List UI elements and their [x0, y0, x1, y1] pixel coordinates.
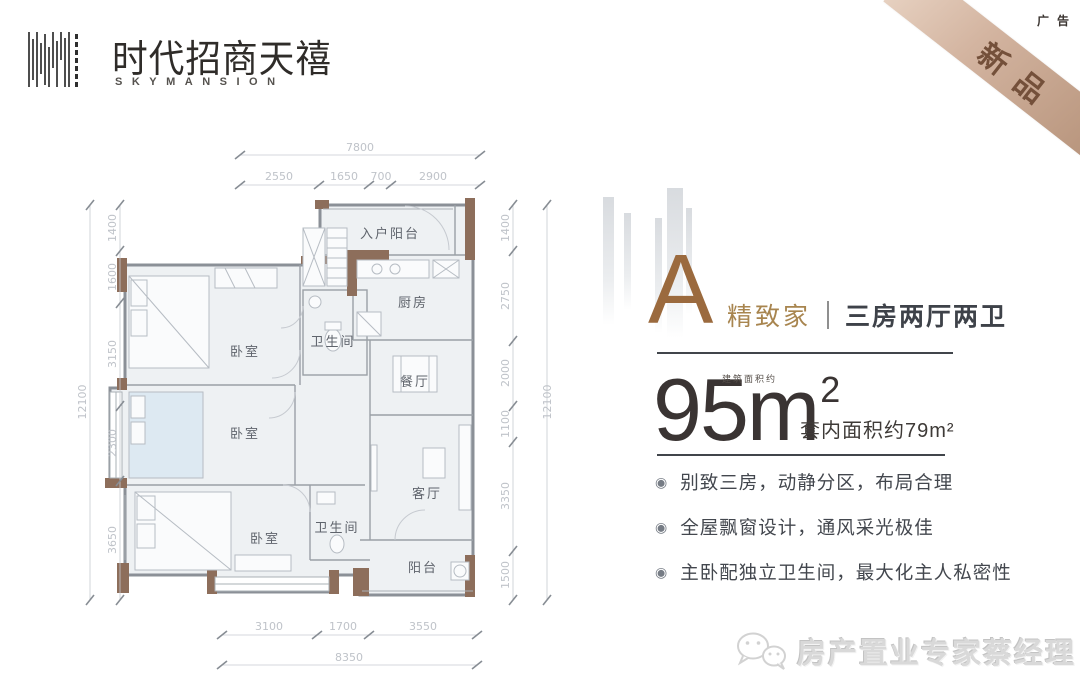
dim-bottom-total: 8350	[335, 651, 363, 664]
dim-top-seg-1: 1650	[330, 170, 358, 183]
dim-right-seg-3: 1100	[499, 410, 512, 438]
feature-item: ◉ 全屋飘窗设计，通风采光极佳	[655, 515, 1012, 539]
dim-left-seg-1: 1600	[106, 263, 119, 291]
dim-left-seg-2: 3150	[106, 340, 119, 368]
feature-bullet-icon: ◉	[655, 475, 667, 489]
feature-list: ◉ 别致三房，动静分区，布局合理 ◉ 全屋飘窗设计，通风采光极佳 ◉ 主卧配独立…	[655, 470, 1012, 605]
watermark-text: 房产置业专家蔡经理	[797, 630, 1076, 672]
unit-layout-desc: 三房两厅两卫	[845, 297, 1007, 333]
dim-right-seg-1: 2750	[499, 282, 512, 310]
room-label-dining: 餐厅	[400, 374, 430, 390]
feature-text: 全屋飘窗设计，通风采光极佳	[680, 514, 934, 540]
dim-top-seg-3: 2900	[419, 170, 447, 183]
dim-right-seg-5: 1500	[499, 561, 512, 589]
dim-right-total: 12100	[541, 385, 554, 420]
divider-rule-top	[657, 352, 953, 354]
dim-left-seg-0: 1400	[106, 214, 119, 242]
ad-tag-label: 广告	[1037, 12, 1077, 29]
agent-watermark: 房产置业专家蔡经理	[733, 629, 1076, 673]
area-block: 95m2 建筑面积约 套内面积约79m²	[653, 366, 840, 458]
room-label-bedroom-upper: 卧室	[230, 344, 260, 360]
room-label-kitchen: 厨房	[398, 295, 428, 311]
room-label-bath-lower: 卫生间	[314, 521, 359, 536]
feature-bullet-icon: ◉	[655, 565, 667, 579]
feature-text: 别致三房，动静分区，布局合理	[680, 469, 953, 495]
dim-right-seg-2: 2000	[499, 359, 512, 387]
dim-right-seg-4: 3350	[499, 482, 512, 510]
ad-canvas: 时代招商天禧 SKYMANSION 广告 新品	[0, 0, 1080, 699]
dim-top-total: 7800	[346, 141, 374, 154]
room-label-bath-upper: 卫生间	[310, 335, 355, 350]
unit-tag-row: 精致家 三房两厅两卫	[727, 297, 1007, 333]
room-label-entry-balcony: 入户阳台	[360, 226, 420, 242]
ribbon-label: 新品	[957, 20, 1069, 121]
unit-type-letter: A	[648, 250, 713, 328]
logo-mark-icon	[28, 30, 84, 90]
dim-right-seg-0: 1400	[499, 214, 512, 242]
dim-top-seg-0: 2550	[265, 170, 293, 183]
inner-area-label: 套内面积约79m²	[800, 414, 955, 443]
feature-item: ◉ 别致三房，动静分区，布局合理	[655, 470, 1012, 494]
feature-text: 主卧配独立卫生间，最大化主人私密性	[680, 559, 1012, 585]
area-exponent: 2	[820, 369, 840, 410]
divider	[827, 301, 829, 329]
brand-logo: 时代招商天禧 SKYMANSION	[28, 26, 328, 106]
unit-tagline: 精致家	[727, 297, 811, 333]
feature-bullet-icon: ◉	[655, 520, 667, 534]
dim-left-seg-3: 2300	[106, 429, 119, 457]
room-label-living: 客厅	[412, 486, 442, 502]
room-label-balcony: 阳台	[408, 561, 438, 576]
room-label-bedroom-middle: 卧室	[230, 426, 260, 442]
dim-bottom-seg-1: 1700	[329, 620, 357, 633]
builtup-area-label: 建筑面积约	[722, 372, 777, 385]
dim-bottom-seg-0: 3100	[255, 620, 283, 633]
brand-name: 时代招商天禧	[112, 28, 332, 83]
dim-bottom-seg-2: 3550	[409, 620, 437, 633]
dim-left-seg-4: 3650	[106, 526, 119, 554]
floorplan-drawing: 入户阳台 厨房 餐厅 卫生间 卧室 卧室 卧室 卫生间 客厅 阳台	[65, 130, 595, 695]
divider-rule-bottom	[657, 454, 945, 456]
dim-left-total: 12100	[76, 385, 89, 420]
wechat-icon	[733, 629, 789, 673]
brand-subtitle: SKYMANSION	[115, 76, 285, 88]
feature-item: ◉ 主卧配独立卫生间，最大化主人私密性	[655, 560, 1012, 584]
dim-top-seg-2: 700	[371, 170, 392, 183]
room-label-bedroom-master: 卧室	[250, 531, 280, 547]
